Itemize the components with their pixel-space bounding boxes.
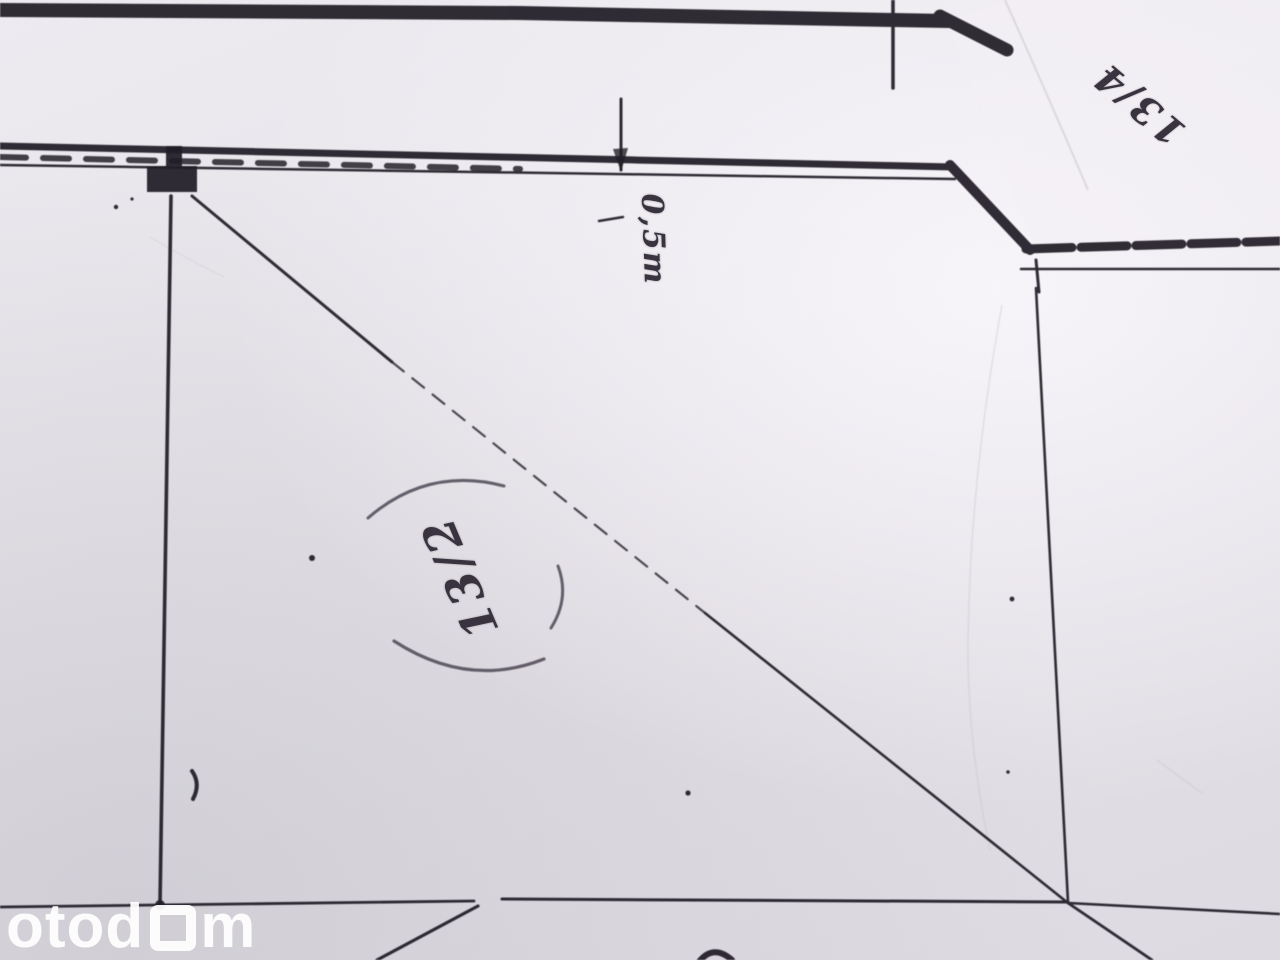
watermark-square-o-icon — [150, 905, 196, 951]
ink-speck — [114, 205, 118, 209]
plot-plan-photo: 13/2 13/4 0,5m otodm — [0, 0, 1280, 960]
bottom-edge-arc-mark — [698, 952, 732, 960]
parcel-diagonal-tail — [1068, 903, 1152, 960]
parcel-diagonal-solid-lower — [705, 613, 1068, 903]
ink-speck — [685, 790, 690, 795]
ink-speck — [1006, 770, 1010, 774]
watermark-text-prefix: otod — [6, 895, 144, 959]
south-boundary-right-segment — [1068, 903, 1280, 914]
survey-drawing — [0, 0, 1280, 960]
otodom-watermark: otodm — [6, 893, 256, 959]
watermark-text-suffix: m — [200, 895, 256, 959]
stray-comma-mark — [192, 771, 197, 799]
parcel-left-side-line — [160, 196, 171, 904]
ink-speck — [130, 197, 133, 200]
measurement-comma-dash — [599, 217, 623, 221]
top-boundary-thick-line — [0, 10, 948, 21]
parcel-right-side-line — [1036, 288, 1068, 902]
north-boundary-thick-line — [0, 146, 953, 167]
south-boundary-mid-segment — [502, 899, 1066, 902]
parcel-diagonal-solid-upper — [192, 196, 392, 362]
ink-speck — [1010, 597, 1015, 602]
distance-annotation: 0,5m — [634, 193, 672, 286]
south-fork-diagonal — [377, 906, 478, 960]
ink-speck — [309, 555, 315, 561]
